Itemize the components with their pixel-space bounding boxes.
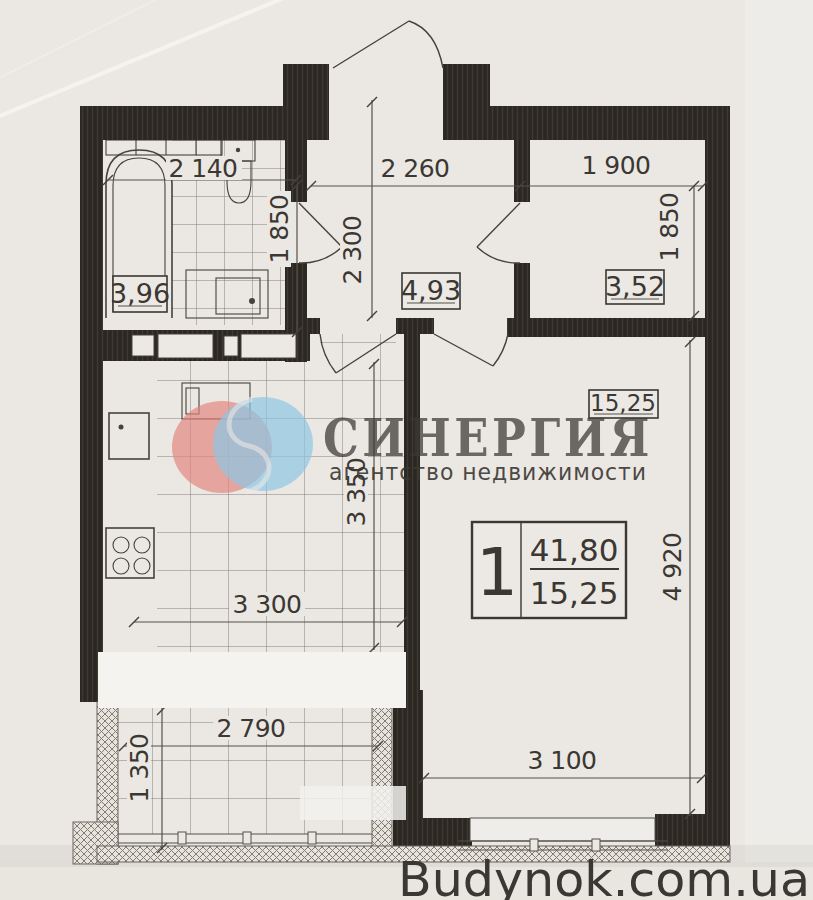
vent-box [241,334,296,358]
window-mullion [592,839,600,851]
logo-right-circle [213,397,313,491]
dim-balcony-width: 2 790 [216,714,285,743]
wall-top-right [457,106,730,140]
balcony-wall-right [372,702,392,848]
stamp-total-area: 41,80 [530,532,619,568]
dim-storage-width: 1 900 [581,151,650,180]
dim-bathroom-depth: 1 850 [265,194,294,263]
kitchen-doorway-tiles [320,334,396,360]
dim-bathroom-width: 2 140 [168,154,237,183]
washbasin-drain [249,298,255,304]
dim-hall-depth: 2 300 [338,215,367,284]
glazing-mullion [308,832,316,844]
hall-area: 4,93 [401,275,461,306]
paper-right-margin [745,0,813,900]
dim-balcony-depth: 1 350 [125,733,154,802]
stamp-living-area: 15,25 [530,575,619,611]
dim-balcony-depth-group: 1 350 [125,730,154,806]
dim-living-depth-group: 4 920 [658,529,687,605]
dim-storage-depth: 1 850 [655,192,684,261]
redaction-band [98,652,406,708]
dim-living-depth: 4 920 [658,532,687,601]
wall-right-outer [705,106,730,847]
redaction-patch [300,786,406,820]
wall-storage-left-lower [514,263,530,320]
vent-box [224,336,238,356]
wall-room-bottom-left [393,818,472,846]
dim-living-width: 3 100 [527,746,596,775]
wall-left-outer [80,106,103,702]
vent-box [132,335,154,356]
fridge-mark [119,425,124,430]
dim-bathroom-depth-group: 1 850 [265,191,294,267]
vent-box [158,334,213,358]
dim-kitchen-width: 3 300 [232,590,301,619]
agency-watermark: СИНЕРГИЯ агентство недвижимости [172,397,653,493]
watermark-tagline: агентство недвижимости [329,459,647,485]
site-credit: Budynok.com.ua [398,851,810,900]
floorplan-photo: 2 140 1 850 2 260 2 300 1 900 1 850 3 30… [0,0,813,900]
apartment-stamp: 1 41,80 15,25 [472,522,626,618]
wall-storage-left-upper [514,140,530,202]
dim-hall-depth-group: 2 300 [338,212,367,288]
floorplan-drawing: 2 140 1 850 2 260 2 300 1 900 1 850 3 30… [0,0,813,900]
wall-entrance-pillar-left [283,64,329,140]
dim-hall-width: 2 260 [380,154,449,183]
window-recess [470,818,655,841]
wall-kitchen-room-divider [404,334,420,694]
storage-area: 3,52 [605,271,665,302]
stamp-rooms-count: 1 [476,534,518,611]
wall-hall-bottom-mid [396,318,434,334]
glazing-mullion [243,832,251,844]
wall-top-left [80,106,285,140]
toilet-tank-button [236,148,240,152]
wall-storage-bottom [507,318,730,337]
glazing-mullion [178,832,186,844]
dim-storage-depth-group: 1 850 [655,189,684,265]
window-mullion [530,839,538,851]
bathroom-area: 3,96 [110,278,170,309]
